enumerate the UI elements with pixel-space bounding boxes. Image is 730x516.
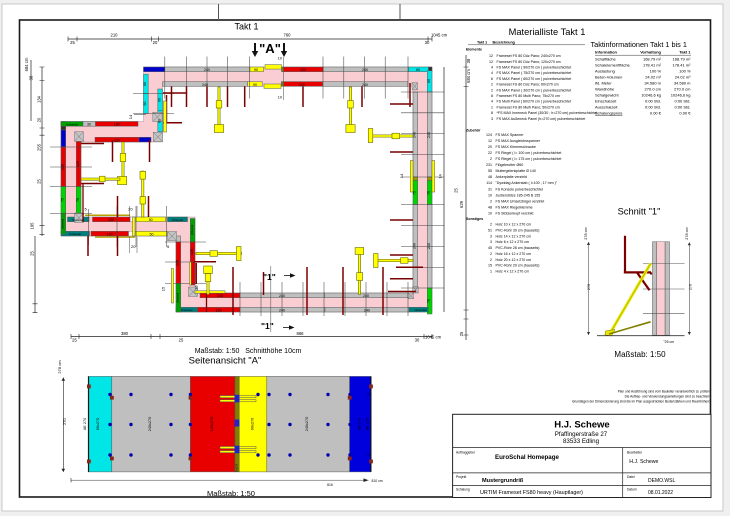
svg-text:120: 120 [61, 164, 65, 170]
svg-text:Zubehör: Zubehör [466, 129, 481, 133]
svg-text:240: 240 [362, 83, 368, 87]
svg-text:240x270: 240x270 [305, 417, 309, 432]
svg-text:Universal: Universal [172, 218, 184, 222]
svg-text:3: 3 [490, 234, 492, 238]
svg-text:60: 60 [157, 119, 161, 123]
svg-text:"1": "1" [261, 321, 274, 331]
svg-text:120: 120 [176, 260, 180, 266]
svg-text:Schalfläche: Schalfläche [595, 56, 616, 61]
svg-text:90: 90 [254, 68, 258, 72]
svg-text:20: 20 [488, 145, 492, 149]
svg-text:75: 75 [76, 198, 80, 202]
svg-text:08.01.2022: 08.01.2022 [648, 490, 673, 496]
svg-text:83533 Edling: 83533 Edling [563, 438, 600, 445]
svg-text:Takt 1: Takt 1 [234, 22, 258, 32]
svg-text:134: 134 [37, 95, 42, 103]
svg-text:210: 210 [111, 32, 119, 37]
svg-text:1045 cm: 1045 cm [425, 335, 442, 340]
svg-text:Frameset FS 80 Multi Pano; 75x: Frameset FS 80 Multi Pano; 75x270 cm [497, 94, 560, 98]
svg-text:FS MAX Außeneck Panel (h=270 c: FS MAX Außeneck Panel (h=270 cm) pulverb… [497, 117, 586, 121]
svg-text:AE 270: AE 270 [366, 418, 370, 430]
svg-text:Holz 10 x 12 x 270 cm: Holz 10 x 12 x 270 cm [496, 223, 532, 227]
svg-text:195: 195 [30, 222, 35, 230]
svg-text:Schalelementfläche: Schalelementfläche [595, 62, 631, 67]
svg-text:20: 20 [128, 207, 133, 212]
svg-text:120: 120 [190, 249, 194, 255]
svg-text:16: 16 [194, 285, 199, 290]
svg-text:60x270: 60x270 [358, 418, 362, 430]
svg-text:0:00 Std.: 0:00 Std. [645, 104, 661, 109]
svg-text:60: 60 [143, 82, 147, 86]
svg-text:Holz 6 x 12 x 270 cm: Holz 6 x 12 x 270 cm [496, 240, 530, 244]
svg-text:lfd. Meter: lfd. Meter [595, 80, 612, 85]
svg-text:270: 270 [689, 284, 693, 290]
svg-text:Projekt: Projekt [456, 475, 466, 479]
svg-text:FS Multi Panel ( 60/270 cm ) p: FS Multi Panel ( 60/270 cm ) pulverbesch… [497, 100, 572, 104]
svg-text:Holz 14 x 12 x 270 cm: Holz 14 x 12 x 270 cm [496, 234, 532, 238]
svg-text:Frameset FS 80 Düz Pano; 120x2: Frameset FS 80 Düz Pano; 120x270 cm [497, 60, 561, 64]
svg-text:270: 270 [587, 284, 591, 290]
svg-text:Information: Information [595, 50, 618, 55]
svg-text:60x270: 60x270 [96, 418, 100, 430]
svg-text:2: 2 [490, 157, 492, 161]
svg-text:120: 120 [217, 294, 223, 298]
svg-text:"A": "A" [259, 41, 281, 56]
svg-text:PVC-Rohr 30 cm (bauseits): PVC-Rohr 30 cm (bauseits) [496, 229, 540, 233]
svg-text:816: 816 [327, 483, 333, 487]
svg-text:12: 12 [489, 60, 493, 64]
svg-text:120: 120 [114, 123, 120, 127]
svg-text:12: 12 [489, 54, 493, 58]
svg-text:278 cm: 278 cm [584, 227, 588, 239]
svg-text:FS Konsole pulverbeschichtet: FS Konsole pulverbeschichtet [496, 187, 544, 191]
svg-text:15: 15 [161, 286, 166, 291]
svg-text:FS MAX Panel ( 90/270 cm ) pul: FS MAX Panel ( 90/270 cm ) pulverbeschic… [497, 66, 572, 70]
svg-text:30: 30 [415, 338, 420, 343]
svg-text:Universal: Universal [62, 218, 65, 229]
svg-text:AE 270: AE 270 [83, 418, 87, 430]
svg-text:0.00 €: 0.00 € [679, 110, 691, 115]
svg-text:10: 10 [278, 57, 282, 61]
svg-text:Maßstab: 1:50 Schnitthöhe 10: Maßstab: 1:50 Schnitthöhe 10cm [195, 348, 302, 355]
svg-text:FS MAX Panel ( 75/270 cm ) pul: FS MAX Panel ( 75/270 cm ) pulverbeschic… [497, 71, 572, 75]
svg-text:Einschalzeit: Einschalzeit [595, 98, 617, 103]
svg-text:Maßstab: 1:50: Maßstab: 1:50 [207, 489, 255, 498]
svg-text:114: 114 [486, 181, 492, 185]
svg-text:120: 120 [216, 309, 222, 313]
svg-text:240: 240 [427, 132, 431, 138]
svg-text:30: 30 [425, 40, 430, 45]
svg-text:Schalung: Schalung [456, 488, 470, 492]
svg-text:278 cm: 278 cm [57, 360, 62, 374]
svg-text:10: 10 [488, 193, 492, 197]
svg-text:60: 60 [416, 68, 420, 72]
svg-text:Mustergrundriß: Mustergrundriß [482, 478, 524, 484]
svg-text:15: 15 [488, 264, 492, 268]
svg-text:FS Stützenkopf verzinkt: FS Stützenkopf verzinkt [496, 212, 534, 216]
svg-text:FS MAX Klemmschraube: FS MAX Klemmschraube [496, 145, 536, 149]
svg-text:"1": "1" [263, 272, 276, 282]
svg-text:25: 25 [459, 331, 464, 336]
svg-text:2: 2 [490, 258, 492, 262]
svg-text:22: 22 [488, 151, 492, 155]
svg-text:51: 51 [488, 229, 492, 233]
svg-text:FS Riegel ( l= 100 cm ) pulver: FS Riegel ( l= 100 cm ) pulverbeschichte… [496, 151, 562, 155]
svg-text:31: 31 [488, 187, 492, 191]
svg-text:Bezeichnung: Bezeichnung [493, 41, 515, 45]
svg-text:Vorhaltung: Vorhaltung [640, 50, 661, 55]
svg-text:240: 240 [413, 243, 417, 249]
svg-text:120: 120 [300, 68, 306, 72]
svg-text:270.0 cm: 270.0 cm [674, 86, 691, 91]
svg-text:EuroSchal Homepage: EuroSchal Homepage [495, 454, 560, 461]
svg-text:Universal: Universal [191, 224, 194, 235]
svg-text:0.00 €: 0.00 € [650, 110, 662, 115]
svg-text:Ausschalzeit: Ausschalzeit [595, 104, 618, 109]
svg-text:Beton-Volumen: Beton-Volumen [595, 74, 622, 79]
svg-text:Sonstiges: Sonstiges [466, 217, 483, 221]
svg-text:810 cm: 810 cm [372, 479, 383, 483]
svg-text:380: 380 [121, 331, 129, 336]
svg-text:255: 255 [37, 143, 42, 151]
svg-text:60: 60 [157, 98, 161, 102]
svg-text:Schnitt "1": Schnitt "1" [618, 207, 661, 217]
svg-text:Elemente: Elemente [466, 48, 482, 52]
svg-text:15x270: 15x270 [234, 463, 238, 472]
svg-text:75: 75 [427, 191, 431, 195]
svg-text:Universal: Universal [69, 232, 81, 236]
svg-text:FS MAX Panel ( 60/270 cm ) pul: FS MAX Panel ( 60/270 cm ) pulverbeschic… [497, 77, 572, 81]
svg-text:25: 25 [70, 40, 75, 45]
svg-text:168.79 m²: 168.79 m² [672, 56, 691, 61]
svg-text:1045 cm: 1045 cm [431, 33, 448, 38]
svg-text:75: 75 [427, 299, 431, 303]
svg-text:Universal: Universal [181, 308, 193, 312]
svg-text:100 %: 100 % [679, 68, 691, 73]
svg-text:DEMO.WSL: DEMO.WSL [648, 478, 675, 484]
svg-text:20: 20 [153, 40, 158, 45]
svg-text:Die Aufbau- und Verwendungsanl: Die Aufbau- und Verwendungsanleitungen s… [625, 395, 711, 399]
svg-text:2: 2 [490, 223, 492, 227]
svg-text:Auslastung: Auslastung [595, 68, 615, 73]
svg-text:75: 75 [61, 198, 65, 202]
svg-text:240: 240 [413, 132, 417, 138]
svg-text:Holz 16 x 12 x 270 cm: Holz 16 x 12 x 270 cm [496, 252, 532, 256]
svg-text:8: 8 [491, 111, 493, 115]
svg-text:1: 1 [490, 270, 492, 274]
svg-text:H.J. Schewe: H.J. Schewe [629, 459, 658, 465]
svg-text:FS Riegel ( l= 175 cm ) pulver: FS Riegel ( l= 175 cm ) pulverbeschichte… [496, 157, 562, 161]
svg-text:PVC-Rohr 26 cm (bauseits): PVC-Rohr 26 cm (bauseits) [496, 246, 540, 250]
svg-text:270.0 cm: 270.0 cm [645, 86, 662, 91]
svg-text:25: 25 [454, 188, 459, 193]
svg-text:FS MAX Panel ( 30/270 cm ) pul: FS MAX Panel ( 30/270 cm ) pulverbeschic… [497, 88, 572, 92]
svg-text:*FS MAX Inneneck Panel (30/30: *FS MAX Inneneck Panel (30/30 ; h=270 cm… [497, 111, 598, 115]
svg-text:Pfaffingerstraße 27: Pfaffingerstraße 27 [555, 431, 608, 438]
svg-text:14: 14 [399, 173, 404, 178]
svg-text:25: 25 [72, 338, 77, 343]
svg-text:240: 240 [364, 309, 370, 313]
svg-text:866: 866 [297, 331, 305, 336]
svg-text:PVC-Rohr 20 cm (bauseits): PVC-Rohr 20 cm (bauseits) [496, 264, 540, 268]
svg-text:120x270: 120x270 [210, 417, 214, 432]
svg-text:Grundlagen der Dimensionierung: Grundlagen der Dimensionierung sind die … [572, 400, 710, 404]
svg-text:4: 4 [491, 66, 493, 70]
svg-text:24.02 m³: 24.02 m³ [645, 74, 661, 79]
svg-text:100 %: 100 % [650, 68, 662, 73]
svg-text:8: 8 [491, 94, 493, 98]
svg-text:38: 38 [29, 75, 34, 80]
svg-text:34.580 m: 34.580 m [644, 80, 661, 85]
svg-text:75: 75 [413, 191, 417, 195]
svg-text:48: 48 [488, 175, 492, 179]
svg-text:FS MAX Riegelklemme: FS MAX Riegelklemme [496, 205, 533, 209]
svg-text:240: 240 [363, 294, 369, 298]
svg-text:Materialliste Takt 1: Materialliste Takt 1 [509, 27, 586, 37]
svg-text:684 cm: 684 cm [24, 57, 29, 71]
svg-text:Plan und Ausführung sind vom B: Plan und Ausführung sind vom Bauleiter v… [618, 390, 710, 394]
svg-text:120: 120 [107, 233, 113, 237]
svg-text:Universal: Universal [66, 122, 78, 126]
svg-text:Universal: Universal [415, 308, 427, 312]
svg-text:240: 240 [279, 294, 285, 298]
svg-text:178.41 m²: 178.41 m² [672, 62, 691, 67]
svg-text:14: 14 [128, 114, 133, 119]
svg-text:270: 270 [62, 418, 67, 425]
svg-text:6: 6 [491, 77, 493, 81]
svg-text:Holz 20 x 12 x 270 cm: Holz 20 x 12 x 270 cm [496, 258, 532, 262]
svg-text:30: 30 [87, 123, 91, 127]
svg-text:H.J. Schewe: H.J. Schewe [554, 420, 609, 431]
svg-text:629: 629 [459, 200, 464, 208]
svg-text:⌝25 cm: ⌝25 cm [663, 339, 674, 344]
svg-text:Holz 4 x 12 x 270 cm: Holz 4 x 12 x 270 cm [496, 270, 530, 274]
svg-text:120: 120 [76, 161, 80, 167]
svg-text:240x270: 240x270 [148, 417, 152, 432]
svg-text:Universal: Universal [177, 292, 180, 303]
svg-text:12: 12 [488, 139, 492, 143]
svg-text:Takt 1: Takt 1 [679, 50, 691, 55]
svg-text:Ankerplatte verzinkt: Ankerplatte verzinkt [496, 175, 528, 179]
svg-text:60: 60 [143, 102, 147, 106]
svg-text:Bearbeiter: Bearbeiter [627, 451, 643, 455]
svg-text:60: 60 [427, 79, 431, 83]
svg-text:168.79 m²: 168.79 m² [643, 56, 662, 61]
svg-text:240: 240 [202, 83, 208, 87]
svg-text:Frameset FS 80 Düz Pano; 60x27: Frameset FS 80 Düz Pano; 60x270 cm [497, 83, 559, 87]
svg-text:124: 124 [486, 133, 492, 137]
svg-text:Universal: Universal [72, 218, 84, 222]
svg-text:2: 2 [491, 88, 493, 92]
svg-text:0:00 Std.: 0:00 Std. [674, 98, 690, 103]
svg-text:Flügelmutter Ø60: Flügelmutter Ø60 [496, 163, 524, 167]
svg-text:Frameset FS 80 Multi Pano; 50x: Frameset FS 80 Multi Pano; 50x270 cm [497, 105, 560, 109]
svg-text:4: 4 [491, 71, 493, 75]
svg-text:4: 4 [491, 100, 493, 104]
svg-text:178.41 m²: 178.41 m² [643, 62, 662, 67]
svg-text:URTIM Frameset FS80 heavy (Hau: URTIM Frameset FS80 heavy (Hauptlager) [480, 490, 583, 496]
svg-text:Datum: Datum [627, 488, 637, 492]
svg-text:24.02 m³: 24.02 m³ [675, 74, 691, 79]
svg-text:Takt 1: Takt 1 [477, 41, 487, 45]
svg-text:3: 3 [491, 117, 493, 121]
svg-text:Muttergelenkplatte Ø 140: Muttergelenkplatte Ø 140 [496, 169, 536, 173]
svg-text:FS MAX Spanner: FS MAX Spanner [496, 133, 525, 137]
svg-text:25: 25 [179, 338, 184, 343]
svg-text:25: 25 [37, 179, 42, 184]
svg-text:Wandhöhe: Wandhöhe [595, 86, 615, 91]
svg-text:25: 25 [30, 251, 35, 256]
svg-text:240: 240 [204, 68, 210, 72]
svg-text:240: 240 [279, 309, 285, 313]
svg-text:10: 10 [488, 212, 492, 216]
svg-text:20: 20 [131, 244, 136, 249]
svg-text:14: 14 [438, 174, 443, 179]
svg-text:90x270: 90x270 [251, 418, 255, 430]
svg-text:50: 50 [150, 233, 154, 237]
svg-text:38: 38 [466, 58, 471, 63]
svg-text:278 cm: 278 cm [685, 227, 689, 239]
svg-text:240: 240 [362, 68, 368, 72]
svg-text:120: 120 [108, 218, 114, 222]
svg-text:0:00 Std.: 0:00 Std. [645, 98, 661, 103]
svg-text:Seitenansicht "A": Seitenansicht "A" [189, 356, 262, 367]
svg-text:Schalgewicht: Schalgewicht [595, 92, 619, 97]
svg-text:50: 50 [149, 218, 153, 222]
svg-text:231: 231 [486, 163, 492, 167]
svg-text:1: 1 [491, 105, 493, 109]
svg-text:FS MAX Ausgleichsspanner: FS MAX Ausgleichsspanner [496, 139, 541, 143]
svg-text:"Dywidag Ankerstab ( l=100 ; 1: "Dywidag Ankerstab ( l=100 ; 17 mm )" [496, 181, 558, 185]
svg-text:10: 10 [278, 96, 282, 100]
svg-text:45: 45 [488, 246, 492, 250]
svg-text:Maßstab: 1:50: Maßstab: 1:50 [614, 350, 666, 359]
svg-text:2: 2 [490, 252, 492, 256]
svg-text:240: 240 [427, 243, 431, 249]
svg-text:Auftraggeber: Auftraggeber [456, 451, 476, 455]
svg-text:684 cm: 684 cm [466, 69, 471, 83]
svg-text:Datei: Datei [627, 475, 635, 479]
svg-text:120: 120 [299, 83, 305, 87]
svg-text:2: 2 [491, 83, 493, 87]
svg-text:20: 20 [37, 117, 42, 122]
svg-text:10246,6 kg: 10246,6 kg [671, 92, 691, 97]
svg-text:3: 3 [490, 240, 492, 244]
svg-text:120: 120 [114, 138, 120, 142]
svg-text:0:00 Std.: 0:00 Std. [674, 104, 690, 109]
svg-text:Justierstütze 185-245 B 155: Justierstütze 185-245 B 155 [496, 193, 541, 197]
svg-text:760: 760 [284, 32, 292, 37]
svg-text:Frameset FS 80 Düz Pano; 240x2: Frameset FS 80 Düz Pano; 240x270 cm [497, 54, 561, 58]
svg-text:90: 90 [253, 83, 257, 87]
svg-text:48: 48 [488, 205, 492, 209]
svg-text:10246,6 kg: 10246,6 kg [641, 92, 661, 97]
svg-text:55: 55 [488, 169, 492, 173]
svg-text:FS MAX Umsetzbügel verzinkt: FS MAX Umsetzbügel verzinkt [496, 199, 545, 203]
svg-text:Taktinformationen Takt 1 bis: Taktinformationen Takt 1 bis 1 [591, 40, 687, 49]
svg-text:34.580 m: 34.580 m [674, 80, 691, 85]
svg-text:Schalungspreis: Schalungspreis [595, 110, 622, 115]
svg-text:2: 2 [490, 199, 492, 203]
